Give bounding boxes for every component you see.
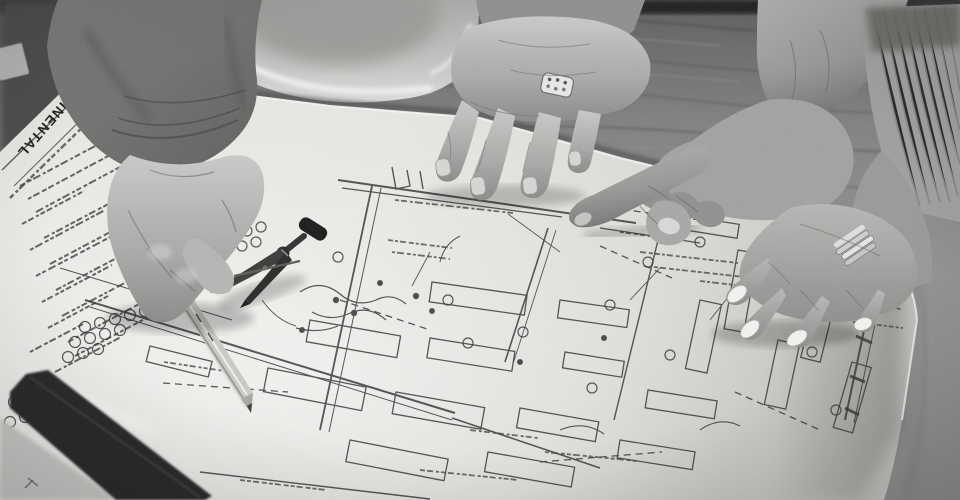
scene-svg: CONTINENTAL xyxy=(0,0,960,500)
vignette-overlay xyxy=(0,0,960,500)
photo-stage: CONTINENTAL xyxy=(0,0,960,500)
